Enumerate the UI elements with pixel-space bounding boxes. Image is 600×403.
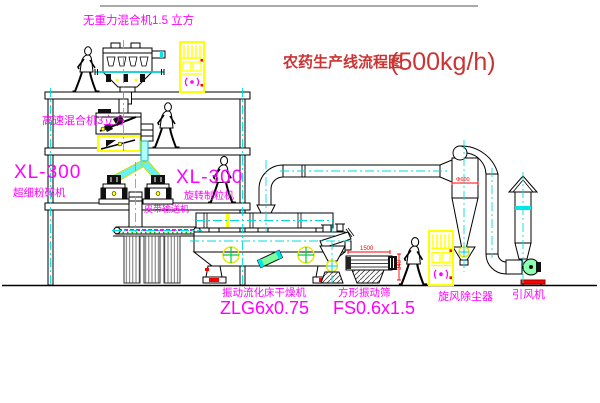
label-cyclone: 旋风除尘器 [438, 289, 493, 303]
belt-conveyor [113, 227, 200, 283]
label-gravity-mixer: 无重力混合机1.5 立方 [83, 13, 194, 27]
cyclone-separator [452, 146, 498, 265]
label-mill-name: 超细粉碎机 [13, 186, 66, 199]
diagram-title: 农药生产线流程图 [282, 53, 403, 71]
rotary-granulator [99, 175, 173, 228]
worker-figure [153, 103, 180, 148]
label-dryer-model: ZLG6x0.75 [220, 298, 309, 318]
worker-figure [399, 238, 427, 285]
control-cabinet-upper [180, 42, 204, 92]
exhaust-duct [257, 160, 452, 213]
label-high-speed-mixer: 高速混合机3立方 [42, 113, 125, 127]
control-cabinet-lower [429, 231, 453, 285]
process-flow-diagram: 农药生产线流程图 (500kg/h) 无重力混合机1.5 立方 高速混合机3立方… [0, 0, 600, 403]
label-fan: 引风机 [512, 287, 545, 301]
label-mill-model: XL-300 [14, 162, 81, 183]
label-sieve-model: FS0.6x1.5 [333, 298, 415, 318]
dimension-sieve-height: 340 [397, 259, 403, 270]
dimension-cyclone-diameter: Φ600 [456, 177, 470, 183]
label-granulator-model: XL-300 [176, 167, 243, 188]
dimension-sieve-length: 1500 [360, 246, 374, 252]
label-granulator-name: 旋转制粒机 [184, 189, 234, 202]
diagram-capacity: (500kg/h) [390, 48, 496, 76]
label-belt-conveyor: 皮带输送机 [144, 203, 189, 214]
